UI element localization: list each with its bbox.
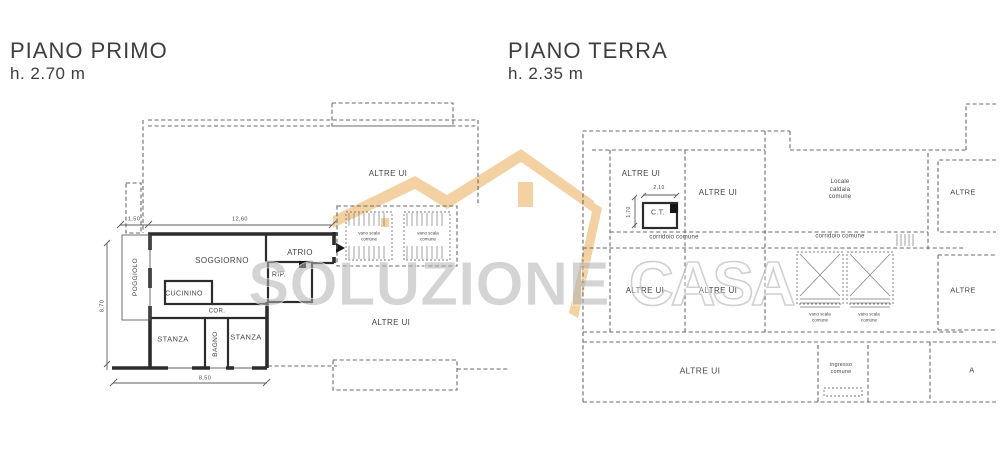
room-label-stanza-right: STANZA: [230, 332, 261, 341]
primo-title: PIANO PRIMO: [10, 38, 168, 64]
room-label-atrio: ATRIO: [287, 248, 313, 258]
room-label-locale-caldaia: Locale caldaia comune: [829, 179, 852, 202]
room-label-stanza-left: STANZA: [157, 334, 188, 343]
room-label-altre-right-2: ALTRE: [950, 285, 976, 294]
room-label-altre-ui-3: ALTRE UI: [626, 286, 665, 296]
primo-dashed-boundary: [126, 103, 508, 390]
room-label-bagno: BAGNO: [212, 331, 220, 356]
room-label-altre-ui-4: ALTRE UI: [699, 286, 738, 296]
room-label-rip: RIP.: [272, 272, 286, 281]
room-label-altre-ui-bottom: ALTRE UI: [372, 318, 411, 328]
terra-title: PIANO TERRA: [508, 38, 668, 64]
terra-height-label: h. 2.35 m: [508, 64, 583, 84]
room-label-altre-ui-top: ALTRE UI: [369, 169, 408, 179]
room-label-cor: COR.: [209, 308, 226, 316]
dim-ct-height: 1,70: [626, 206, 632, 217]
room-label-altre-ui-big: ALTRE UI: [680, 366, 721, 377]
room-label-ct: C.T.: [651, 210, 665, 219]
floorplan-document: PIANO PRIMO h. 2.70 m PIANO TERRA h. 2.3…: [0, 0, 1000, 472]
room-label-vano-scala-terra-2: vano scala comune: [858, 311, 880, 322]
terra-stairwells: [797, 252, 893, 307]
room-label-a-truncated: A: [969, 365, 974, 374]
terra-dashed-boundary: [583, 104, 996, 402]
room-label-corridoio-1: corridoio comune: [649, 234, 698, 242]
dim-ct-width: 2,10: [653, 185, 664, 191]
room-label-altre-ui-1: ALTRE UI: [622, 169, 661, 179]
room-label-vano-scala-terra-1: vano scala comune: [809, 311, 831, 322]
room-label-poggiolo: POGGIOLO: [132, 258, 140, 296]
primo-height-label: h. 2.70 m: [10, 64, 85, 84]
room-label-altre-ui-2: ALTRE UI: [699, 188, 738, 198]
room-label-vano-scala-2: vano scala comune: [417, 230, 439, 241]
room-label-soggiorno: SOGGIORNO: [195, 256, 249, 266]
dim-balcony-width: 1,50: [128, 217, 140, 224]
room-label-vano-scala-1: vano scala comune: [358, 230, 380, 241]
room-label-ingresso: ingresso comune: [830, 362, 852, 376]
dim-bottom-width: 8,50: [199, 376, 211, 383]
room-label-corridoio-2: corridoio comune: [815, 233, 864, 241]
dim-facade-width: 12,60: [232, 217, 248, 224]
room-label-altre-right-1: ALTRE: [950, 187, 976, 196]
dim-side-depth: 8,70: [100, 300, 107, 312]
room-label-cucinino: CUCININO: [165, 291, 203, 300]
